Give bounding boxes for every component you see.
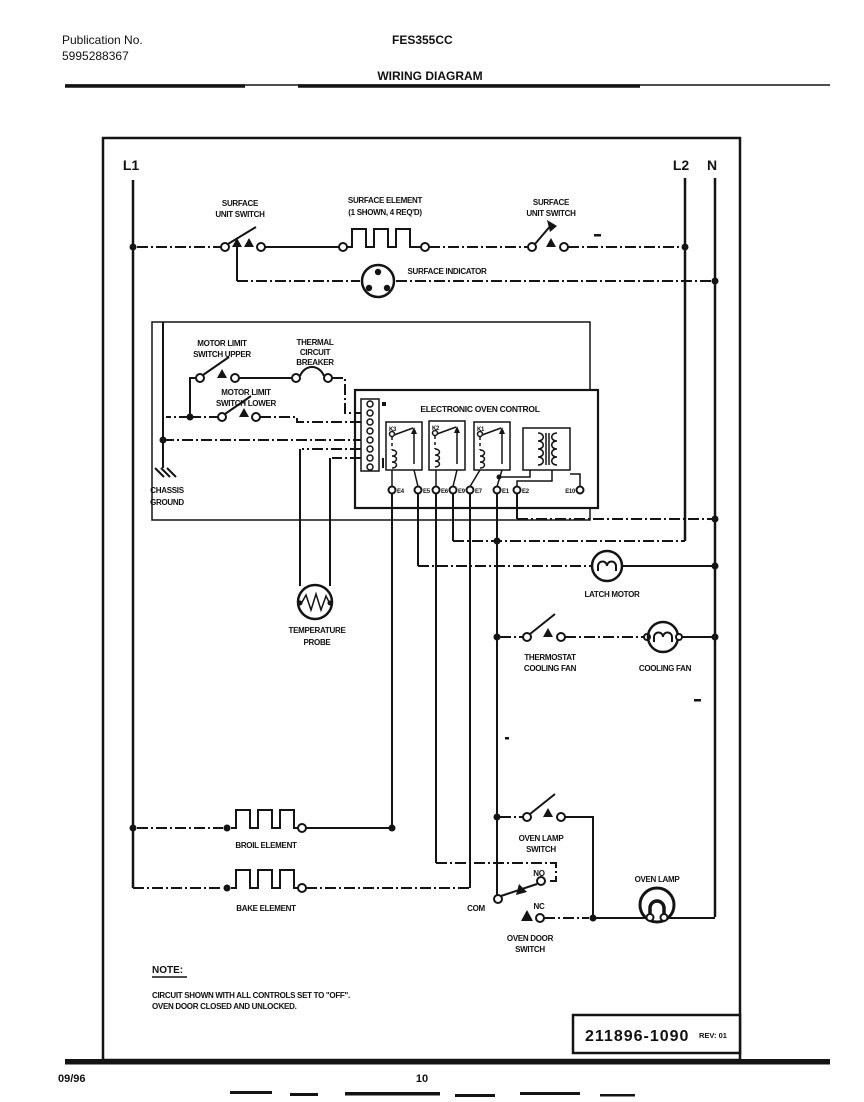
breaker-label: BREAKER: [296, 358, 334, 367]
fan-terminal: [676, 634, 682, 640]
cooling-fan-label: COOLING FAN: [639, 664, 692, 673]
electronic-oven-control: ELECTRONIC OVEN CONTROL K3: [163, 378, 598, 508]
terminal-label: E9: [458, 489, 466, 495]
element-terminal: [421, 243, 429, 251]
wire: [565, 817, 593, 918]
probe-pin: [298, 601, 303, 606]
switch-contact-triangle: [232, 238, 242, 247]
door-no-label: NO: [533, 869, 544, 878]
ground-label: GROUND: [150, 498, 184, 507]
broil-element-label: BROIL ELEMENT: [235, 841, 297, 850]
switch-label: MOTOR LIMIT: [221, 388, 271, 397]
element-terminal: [339, 243, 347, 251]
scan-artifact: [594, 234, 601, 237]
element-label: (1 SHOWN, 4 REQ'D): [348, 208, 422, 217]
footer-date: 09/96: [58, 1073, 86, 1085]
indicator-pin: [366, 285, 372, 291]
terminal-e10: [577, 487, 584, 494]
junction-dot: [130, 244, 137, 251]
footer-page-number: 10: [416, 1073, 428, 1085]
junction-dot: [494, 814, 501, 821]
junction-dot: [712, 563, 719, 570]
oven-lamp-symbol: [640, 888, 674, 922]
switch-contact-triangle: [543, 808, 553, 817]
element-coil: [231, 810, 298, 828]
oven-lamp-circuit: OVEN LAMP: [596, 875, 715, 922]
surface-indicator-circuit: SURFACE INDICATOR: [237, 247, 719, 297]
lamp-terminal: [661, 914, 668, 921]
motor-icon: [654, 633, 672, 643]
surface-element: SURFACE ELEMENT (1 SHOWN, 4 REQ'D): [339, 196, 429, 251]
element-terminal: [298, 824, 306, 832]
terminal-label: E6: [441, 489, 449, 495]
surface-unit-switch-right: SURFACE UNIT SWITCH: [526, 198, 576, 251]
terminal-label: E7: [475, 489, 483, 495]
thermostat-blade: [530, 614, 555, 634]
switch-contact-triangle: [217, 369, 227, 378]
door-nc-label: NC: [534, 902, 545, 911]
switch-terminal: [218, 413, 226, 421]
wire: [260, 417, 361, 422]
l1-bus-label: L1: [123, 157, 140, 173]
eoc-title: ELECTRONIC OVEN CONTROL: [420, 404, 539, 414]
latch-motor-label: LATCH MOTOR: [584, 590, 640, 599]
terminal-label: E5: [423, 489, 431, 495]
switch-label: UNIT SWITCH: [526, 209, 576, 218]
switch-blade: [203, 357, 229, 375]
indicator-pin: [384, 285, 390, 291]
switch-blade-arrowhead: [547, 220, 557, 232]
element-terminal: [224, 825, 231, 832]
l2-bus-label: L2: [673, 157, 690, 173]
footer-rule: [65, 1059, 830, 1065]
junction-dot: [494, 634, 501, 641]
publication-label: Publication No.: [62, 33, 143, 47]
junction-dot: [712, 634, 719, 641]
oven-lamp-label: OVEN LAMP: [635, 875, 681, 884]
ground-label: CHASSIS: [150, 486, 184, 495]
scan-artifact: [600, 1094, 635, 1097]
element-terminal: [224, 885, 231, 892]
note-heading: NOTE:: [152, 965, 183, 976]
junction-dot: [682, 244, 689, 251]
switch-terminal: [257, 243, 265, 251]
switch-label: SURFACE: [222, 199, 259, 208]
switch-label: SWITCH UPPER: [193, 350, 251, 359]
page-footer: 09/96 10: [58, 1059, 830, 1085]
breaker-terminal: [292, 374, 300, 382]
breaker-label: THERMAL: [296, 338, 333, 347]
door-nc-triangle: [521, 910, 533, 921]
terminal-e9: [450, 487, 457, 494]
lamp-switch-label: OVEN LAMP: [519, 834, 565, 843]
switch-terminal: [252, 413, 260, 421]
terminal-label: E2: [522, 489, 530, 495]
door-no-terminal: [537, 877, 545, 885]
indicator-label: SURFACE INDICATOR: [407, 267, 487, 276]
thermostat-label: COOLING FAN: [524, 664, 577, 673]
motor-limit-switch-upper: MOTOR LIMIT SWITCH UPPER: [193, 339, 251, 382]
terminal-label: E10: [565, 489, 576, 495]
note-line: CIRCUIT SHOWN WITH ALL CONTROLS SET TO "…: [152, 991, 350, 1000]
scan-artifact: [230, 1091, 272, 1094]
motor-limit-switch-lower: MOTOR LIMIT SWITCH LOWER: [187, 378, 277, 421]
element-terminal: [298, 884, 306, 892]
thermostat-terminal: [557, 633, 565, 641]
latch-motor-circuit: LATCH MOTOR: [418, 551, 719, 599]
chassis-ground-icon: [155, 468, 176, 477]
scan-artifact: [290, 1093, 318, 1096]
broil-element-circuit: BROIL ELEMENT: [130, 810, 396, 850]
motor-icon: [598, 562, 616, 572]
terminal-label: E4: [397, 489, 405, 495]
junction-dot: [494, 538, 501, 545]
wire: [190, 378, 196, 417]
page-header: Publication No. 5995288367 FES355CC WIRI…: [62, 33, 830, 86]
switch-contact-triangle: [546, 238, 556, 247]
temperature-probe-circuit: TEMPERATURE PROBE: [289, 449, 347, 647]
element-coil: [231, 870, 298, 888]
breaker-label: CIRCUIT: [300, 348, 331, 357]
breaker-arc: [300, 367, 324, 376]
cooling-fan-circuit: THERMOSTAT COOLING FAN COOLING FAN: [494, 614, 719, 673]
element-label: SURFACE ELEMENT: [348, 196, 423, 205]
element-coil: [347, 229, 421, 247]
model-number: FES355CC: [392, 33, 453, 47]
switch-terminal: [557, 813, 565, 821]
page-title: WIRING DIAGRAM: [377, 69, 482, 83]
switch-contact-triangle: [239, 408, 249, 417]
door-com-terminal: [494, 895, 502, 903]
terminal-e4: [389, 487, 396, 494]
door-com-label: COM: [467, 904, 485, 913]
door-nc-terminal: [536, 914, 544, 922]
publication-number: 5995288367: [62, 49, 129, 63]
junction-dot: [712, 516, 719, 523]
switch-blade: [228, 227, 256, 244]
thermostat-label: THERMOSTAT: [524, 653, 576, 662]
surface-unit-circuit: SURFACE UNIT SWITCH SURFACE ELEMENT (1 S…: [130, 196, 719, 297]
part-number: 211896-1090: [585, 1028, 689, 1045]
terminal-e1: [494, 487, 501, 494]
diagram-border: [103, 138, 740, 1060]
thermostat-terminal: [523, 633, 531, 641]
note-line: OVEN DOOR CLOSED AND UNLOCKED.: [152, 1002, 297, 1011]
thermal-circuit-breaker: THERMAL CIRCUIT BREAKER: [239, 338, 334, 382]
bake-element-label: BAKE ELEMENT: [236, 904, 296, 913]
probe-label: PROBE: [304, 638, 332, 647]
switch-terminal: [196, 374, 204, 382]
connector-mark: [382, 402, 386, 406]
scan-artifact: [455, 1094, 495, 1097]
lamp-switch-label: SWITCH: [526, 845, 556, 854]
junction-dot: [130, 825, 137, 832]
bake-element-circuit: BAKE ELEMENT: [133, 870, 470, 913]
scan-artifact: [345, 1092, 440, 1096]
terminal-e6: [433, 487, 440, 494]
breaker-terminal: [324, 374, 332, 382]
junction-dot: [497, 475, 502, 480]
switch-contact-triangle: [244, 238, 254, 247]
switch-label: UNIT SWITCH: [215, 210, 265, 219]
note-block: NOTE: CIRCUIT SHOWN WITH ALL CONTROLS SE…: [152, 965, 350, 1011]
terminal-label: E1: [502, 489, 510, 495]
door-blade-arrowhead: [516, 884, 527, 895]
switch-terminal: [528, 243, 536, 251]
part-revision: REV: 01: [699, 1031, 727, 1040]
oven-door-switch-circuit: NO COM NC OVEN DOOR SWITCH: [436, 863, 597, 954]
switch-terminal: [560, 243, 568, 251]
switch-terminal: [523, 813, 531, 821]
scan-artifact: [520, 1092, 580, 1095]
motor-limit-circuit: MOTOR LIMIT SWITCH UPPER THERMAL CIRCUIT…: [150, 322, 334, 507]
scan-artifact: [505, 737, 509, 740]
n-bus-label: N: [707, 157, 717, 173]
temperature-probe-symbol: [298, 585, 332, 619]
switch-terminal: [221, 243, 229, 251]
lamp-terminal: [647, 914, 654, 921]
probe-resistor-icon: [301, 594, 330, 610]
switch-contact-triangle: [543, 628, 553, 637]
chassis-ground: CHASSIS GROUND: [150, 322, 190, 507]
terminal-e5: [415, 487, 422, 494]
probe-label: TEMPERATURE: [289, 626, 347, 635]
switch-label: MOTOR LIMIT: [197, 339, 247, 348]
oven-lamp-switch-circuit: OVEN LAMP SWITCH: [494, 794, 594, 918]
indicator-pin: [375, 269, 381, 275]
door-switch-label: OVEN DOOR: [507, 934, 554, 943]
terminal-e7: [467, 487, 474, 494]
terminal-e2: [514, 487, 521, 494]
part-number-box: 211896-1090 REV: 01: [573, 1015, 740, 1053]
wiring-diagram-canvas: Publication No. 5995288367 FES355CC WIRI…: [0, 0, 864, 1102]
door-switch-label: SWITCH: [515, 945, 545, 954]
switch-terminal: [231, 374, 239, 382]
switch-label: SURFACE: [533, 198, 570, 207]
switch-blade: [530, 794, 555, 814]
surface-unit-switch-left: SURFACE UNIT SWITCH: [215, 199, 265, 251]
junction-dot: [590, 915, 597, 922]
probe-pin: [328, 601, 333, 606]
scan-artifact: [694, 699, 701, 702]
scanned-wiring-diagram-page: Publication No. 5995288367 FES355CC WIRI…: [0, 0, 864, 1102]
junction-dot: [389, 825, 396, 832]
junction-dot: [712, 278, 719, 285]
